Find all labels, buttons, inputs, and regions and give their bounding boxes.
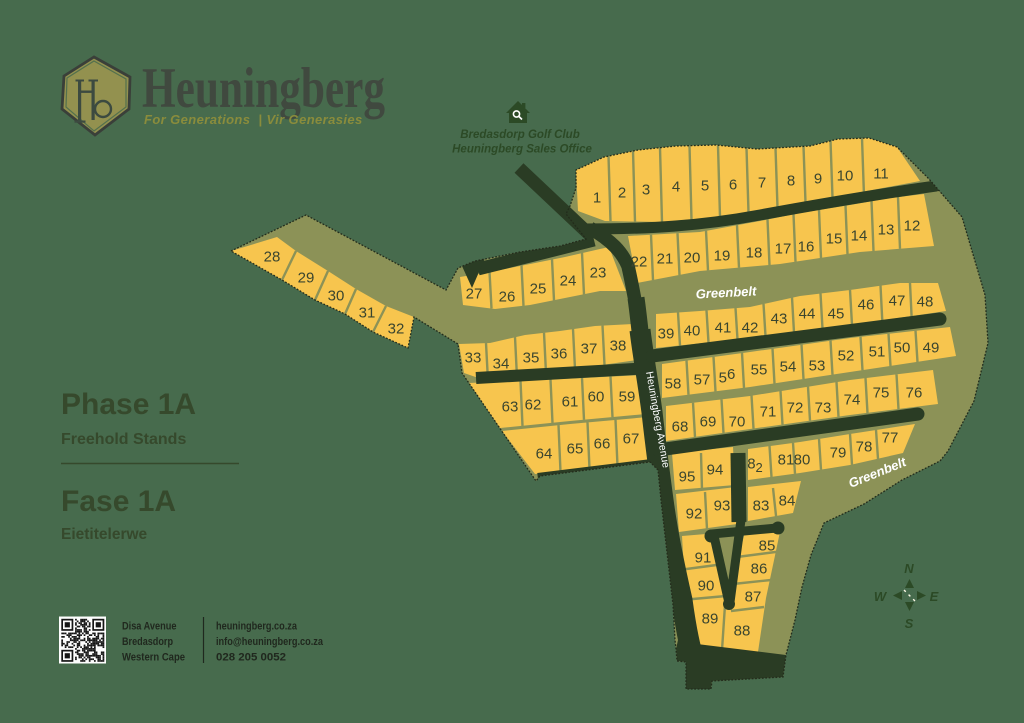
svg-text:1: 1 bbox=[593, 190, 601, 207]
svg-text:25: 25 bbox=[530, 281, 547, 298]
svg-text:62: 62 bbox=[525, 397, 542, 414]
svg-text:Freehold Stands: Freehold Stands bbox=[61, 431, 186, 448]
svg-text:95: 95 bbox=[679, 469, 696, 486]
svg-text:W: W bbox=[874, 589, 888, 604]
svg-text:45: 45 bbox=[828, 306, 845, 323]
svg-text:Heuningberg: Heuningberg bbox=[142, 56, 385, 119]
svg-text:78: 78 bbox=[856, 439, 873, 456]
svg-text:39: 39 bbox=[658, 326, 675, 343]
svg-text:Western Cape: Western Cape bbox=[122, 652, 185, 664]
svg-text:66: 66 bbox=[594, 436, 611, 453]
svg-text:71: 71 bbox=[760, 404, 777, 421]
svg-text:2: 2 bbox=[618, 185, 626, 202]
svg-text:Bredasdorp: Bredasdorp bbox=[122, 636, 173, 648]
svg-text:37: 37 bbox=[581, 341, 598, 358]
svg-text:11: 11 bbox=[873, 166, 889, 183]
svg-text:42: 42 bbox=[742, 320, 759, 337]
svg-text:E: E bbox=[930, 589, 939, 604]
svg-text:43: 43 bbox=[771, 311, 788, 328]
svg-text:55: 55 bbox=[751, 362, 768, 379]
svg-text:36: 36 bbox=[551, 346, 568, 363]
svg-text:80: 80 bbox=[794, 452, 811, 469]
svg-text:61: 61 bbox=[562, 394, 579, 411]
svg-text:94: 94 bbox=[707, 462, 724, 479]
svg-text:54: 54 bbox=[780, 359, 797, 376]
svg-text:87: 87 bbox=[745, 589, 762, 606]
svg-text:68: 68 bbox=[672, 419, 689, 436]
svg-text:73: 73 bbox=[815, 400, 832, 417]
svg-text:22: 22 bbox=[631, 254, 648, 271]
svg-text:79: 79 bbox=[830, 445, 847, 462]
svg-text:40: 40 bbox=[684, 323, 701, 340]
svg-text:86: 86 bbox=[751, 561, 768, 578]
svg-text:5: 5 bbox=[701, 178, 709, 195]
svg-text:28: 28 bbox=[264, 249, 281, 266]
svg-text:89: 89 bbox=[702, 611, 719, 628]
svg-text:38: 38 bbox=[610, 338, 627, 355]
svg-text:13: 13 bbox=[878, 222, 895, 239]
svg-text:29: 29 bbox=[298, 270, 315, 287]
svg-text:16: 16 bbox=[798, 239, 815, 256]
svg-text:63: 63 bbox=[502, 399, 519, 416]
svg-text:57: 57 bbox=[694, 372, 711, 389]
svg-text:64: 64 bbox=[536, 446, 553, 463]
svg-text:18: 18 bbox=[746, 245, 763, 262]
svg-text:heuningberg.co.za: heuningberg.co.za bbox=[216, 621, 298, 633]
svg-text:8: 8 bbox=[787, 173, 795, 190]
svg-text:65: 65 bbox=[567, 441, 584, 458]
svg-text:34: 34 bbox=[493, 356, 510, 373]
svg-text:93: 93 bbox=[714, 498, 731, 515]
svg-text:50: 50 bbox=[894, 340, 911, 357]
svg-text:9: 9 bbox=[814, 171, 822, 188]
svg-text:17: 17 bbox=[775, 241, 792, 258]
svg-text:Heuningberg Sales Office: Heuningberg Sales Office bbox=[452, 144, 592, 156]
svg-text:23: 23 bbox=[590, 265, 607, 282]
svg-text:15: 15 bbox=[826, 231, 843, 248]
svg-text:12: 12 bbox=[904, 218, 921, 235]
svg-text:44: 44 bbox=[799, 306, 816, 323]
svg-text:31: 31 bbox=[359, 305, 376, 322]
svg-text:028 205 0052: 028 205 0052 bbox=[216, 652, 286, 664]
svg-text:Eietitelerwe: Eietitelerwe bbox=[61, 526, 148, 543]
svg-text:Fase 1A: Fase 1A bbox=[61, 485, 176, 518]
svg-text:Disa Avenue: Disa Avenue bbox=[122, 621, 177, 633]
svg-text:S: S bbox=[905, 616, 914, 631]
svg-text:33: 33 bbox=[465, 350, 482, 367]
svg-text:46: 46 bbox=[858, 297, 875, 314]
svg-text:59: 59 bbox=[619, 389, 636, 406]
svg-text:91: 91 bbox=[695, 550, 712, 567]
svg-text:6: 6 bbox=[729, 177, 737, 194]
svg-text:77: 77 bbox=[882, 430, 899, 447]
svg-text:49: 49 bbox=[923, 340, 940, 357]
svg-text:47: 47 bbox=[889, 293, 906, 310]
svg-text:60: 60 bbox=[588, 389, 605, 406]
svg-text:For Generations | Vir Generas: For Generations | Vir Generasies bbox=[144, 112, 363, 127]
svg-text:81: 81 bbox=[778, 452, 795, 469]
svg-text:48: 48 bbox=[917, 294, 934, 311]
svg-text:92: 92 bbox=[686, 506, 703, 523]
svg-text:52: 52 bbox=[838, 348, 855, 365]
svg-text:70: 70 bbox=[729, 414, 746, 431]
svg-text:N: N bbox=[904, 561, 914, 576]
svg-text:24: 24 bbox=[560, 273, 577, 290]
svg-text:84: 84 bbox=[779, 493, 796, 510]
svg-text:Greenbelt: Greenbelt bbox=[695, 283, 757, 301]
svg-text:90: 90 bbox=[698, 578, 715, 595]
svg-text:58: 58 bbox=[665, 376, 682, 393]
svg-text:32: 32 bbox=[388, 321, 405, 338]
svg-text:88: 88 bbox=[734, 623, 751, 640]
svg-text:85: 85 bbox=[759, 538, 776, 555]
svg-text:10: 10 bbox=[837, 168, 854, 185]
svg-text:67: 67 bbox=[623, 431, 640, 448]
svg-text:27: 27 bbox=[466, 286, 483, 303]
svg-text:7: 7 bbox=[758, 175, 766, 192]
svg-text:69: 69 bbox=[700, 414, 717, 431]
svg-text:Phase 1A: Phase 1A bbox=[61, 388, 196, 421]
svg-text:41: 41 bbox=[715, 320, 732, 337]
svg-text:30: 30 bbox=[328, 288, 345, 305]
svg-text:83: 83 bbox=[753, 498, 770, 515]
svg-text:74: 74 bbox=[844, 392, 861, 409]
svg-text:51: 51 bbox=[869, 344, 886, 361]
svg-text:info@heuningberg.co.za: info@heuningberg.co.za bbox=[216, 636, 324, 648]
svg-text:14: 14 bbox=[851, 228, 868, 245]
svg-text:35: 35 bbox=[523, 350, 540, 367]
svg-text:20: 20 bbox=[684, 250, 701, 267]
svg-text:3: 3 bbox=[642, 182, 650, 199]
svg-text:4: 4 bbox=[672, 179, 680, 196]
svg-text:76: 76 bbox=[906, 385, 923, 402]
svg-text:19: 19 bbox=[714, 248, 731, 265]
svg-text:21: 21 bbox=[657, 251, 674, 268]
svg-text:72: 72 bbox=[787, 400, 804, 417]
svg-text:26: 26 bbox=[499, 289, 516, 306]
svg-text:53: 53 bbox=[809, 358, 826, 375]
svg-text:75: 75 bbox=[873, 385, 890, 402]
svg-text:Bredasdorp Golf Club: Bredasdorp Golf Club bbox=[460, 129, 579, 141]
